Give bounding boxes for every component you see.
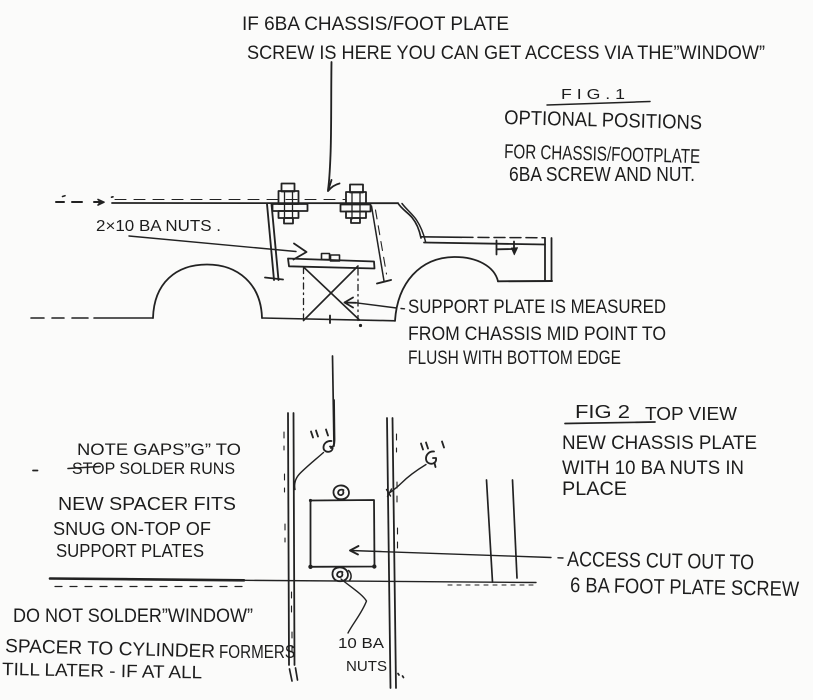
svg-text:NUTS: NUTS xyxy=(346,658,387,675)
svg-text:SUPPORT PLATES: SUPPORT PLATES xyxy=(56,541,204,561)
svg-text:TOP VIEW: TOP VIEW xyxy=(645,404,737,424)
svg-text:DO NOT SOLDER”WINDOW”: DO NOT SOLDER”WINDOW” xyxy=(13,606,253,627)
svg-text:NEW SPACER FITS: NEW SPACER FITS xyxy=(58,494,236,514)
svg-text:PLACE: PLACE xyxy=(562,479,627,500)
svg-text:ACCESS CUT OUT TO: ACCESS CUT OUT TO xyxy=(567,548,754,574)
svg-text:FROM CHASSIS MID POINT TO: FROM CHASSIS MID POINT TO xyxy=(408,324,666,345)
svg-text:FIG 2: FIG 2 xyxy=(575,402,630,422)
svg-text:2×10 BA NUTS .: 2×10 BA NUTS . xyxy=(96,218,221,235)
svg-text:10 BA: 10 BA xyxy=(338,635,384,652)
svg-text:WITH 10 BA NUTS IN: WITH 10 BA NUTS IN xyxy=(562,458,744,479)
svg-text:TILL LATER - IF AT ALL: TILL LATER - IF AT ALL xyxy=(2,659,202,682)
svg-text:SUPPORT PLATE IS MEASURED: SUPPORT PLATE IS MEASURED xyxy=(408,297,666,318)
svg-text:6BA SCREW AND NUT.: 6BA SCREW AND NUT. xyxy=(509,164,695,186)
svg-text:F I G . 1: F I G . 1 xyxy=(561,86,625,103)
svg-text:SNUG ON-TOP OF: SNUG ON-TOP OF xyxy=(53,519,211,539)
svg-text:STOP SOLDER RUNS: STOP SOLDER RUNS xyxy=(72,459,235,478)
svg-text:SCREW IS HERE YOU CAN GET ACCE: SCREW IS HERE YOU CAN GET ACCESS VIA THE… xyxy=(247,43,765,64)
svg-text:FLUSH WITH BOTTOM EDGE: FLUSH WITH BOTTOM EDGE xyxy=(408,348,621,369)
svg-text:NOTE GAPS”G” TO: NOTE GAPS”G” TO xyxy=(77,440,241,459)
svg-text:6 BA FOOT PLATE SCREW: 6 BA FOOT PLATE SCREW xyxy=(570,574,800,601)
svg-text:NEW CHASSIS PLATE: NEW CHASSIS PLATE xyxy=(562,433,757,454)
svg-text:IF 6BA CHASSIS/FOOT PLATE: IF 6BA CHASSIS/FOOT PLATE xyxy=(242,14,509,35)
svg-text:FORMERS: FORMERS xyxy=(219,642,295,662)
